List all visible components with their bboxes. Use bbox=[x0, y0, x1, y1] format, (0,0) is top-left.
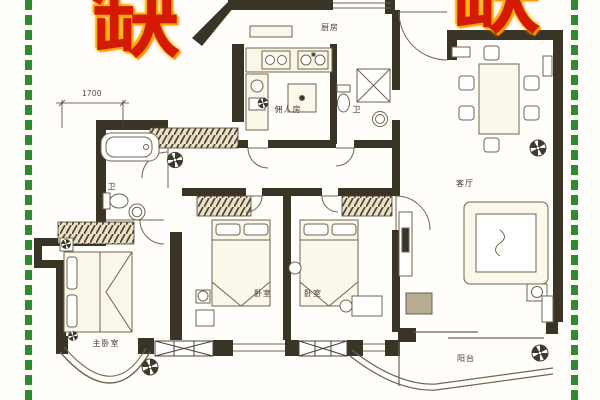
flower-icon bbox=[61, 239, 70, 248]
window-bedroom-side bbox=[299, 341, 347, 356]
sofa bbox=[464, 202, 548, 284]
bedroom-left-bed bbox=[196, 220, 270, 326]
room-label-living-room: 客厅 bbox=[456, 178, 474, 188]
accent-block bbox=[406, 293, 432, 314]
floorplan-screenshot: 1700 厨房 佣人房 卫 卫 卧室 卧室 主卧室 客厅 阳台 缺 缺 bbox=[0, 0, 600, 400]
floor-plan-drawing: 1700 厨房 佣人房 卫 卫 卧室 卧室 主卧室 客厅 阳台 bbox=[0, 0, 600, 400]
washbasin bbox=[373, 112, 388, 127]
pinwheel-fan-icon bbox=[167, 152, 182, 167]
bathtub bbox=[101, 133, 159, 161]
x-windows bbox=[155, 341, 347, 356]
dimension-label: 1700 bbox=[82, 89, 102, 98]
toilet bbox=[337, 85, 350, 112]
flower-icon bbox=[68, 331, 77, 340]
bedroom-right-bed bbox=[289, 220, 382, 316]
kitchen-fixtures bbox=[246, 26, 332, 130]
toilet bbox=[103, 193, 128, 209]
dashed-frame-left bbox=[25, 0, 32, 400]
bay-window bbox=[60, 347, 150, 383]
room-label-bedroom-left: 卧室 bbox=[254, 288, 272, 298]
pinwheel-fan-icon bbox=[532, 345, 548, 361]
stove bbox=[298, 51, 328, 69]
balcony-outline bbox=[350, 332, 553, 390]
watermark-character-top-right: 缺 bbox=[452, 0, 540, 38]
sink bbox=[262, 51, 290, 69]
bathroom-top-fixtures bbox=[337, 69, 390, 127]
bathroom-left-fixtures bbox=[101, 133, 159, 220]
watermark-character-top-left: 缺 bbox=[92, 0, 180, 62]
dining-set bbox=[452, 46, 552, 152]
pinwheel-fan-icon bbox=[142, 359, 158, 375]
pinwheel-fan-icon bbox=[530, 140, 546, 156]
room-label-bathroom-left: 卫 bbox=[108, 182, 117, 191]
room-label-bedroom-right: 卧室 bbox=[304, 288, 322, 298]
tv-cabinet bbox=[399, 212, 412, 276]
room-label-bathroom-top: 卫 bbox=[353, 105, 362, 114]
room-label-balcony: 阳台 bbox=[457, 353, 475, 363]
window-master-side bbox=[155, 341, 213, 356]
room-label-kitchen: 厨房 bbox=[321, 22, 339, 32]
room-label-maid-room: 佣人房 bbox=[275, 104, 302, 114]
flower-icon bbox=[258, 98, 268, 108]
washbasin bbox=[129, 204, 145, 220]
shower bbox=[357, 69, 390, 102]
master-bed bbox=[60, 238, 132, 332]
room-label-master-bedroom: 主卧室 bbox=[93, 338, 120, 348]
living-room-furniture bbox=[399, 202, 553, 322]
dashed-frame-right bbox=[571, 0, 578, 400]
